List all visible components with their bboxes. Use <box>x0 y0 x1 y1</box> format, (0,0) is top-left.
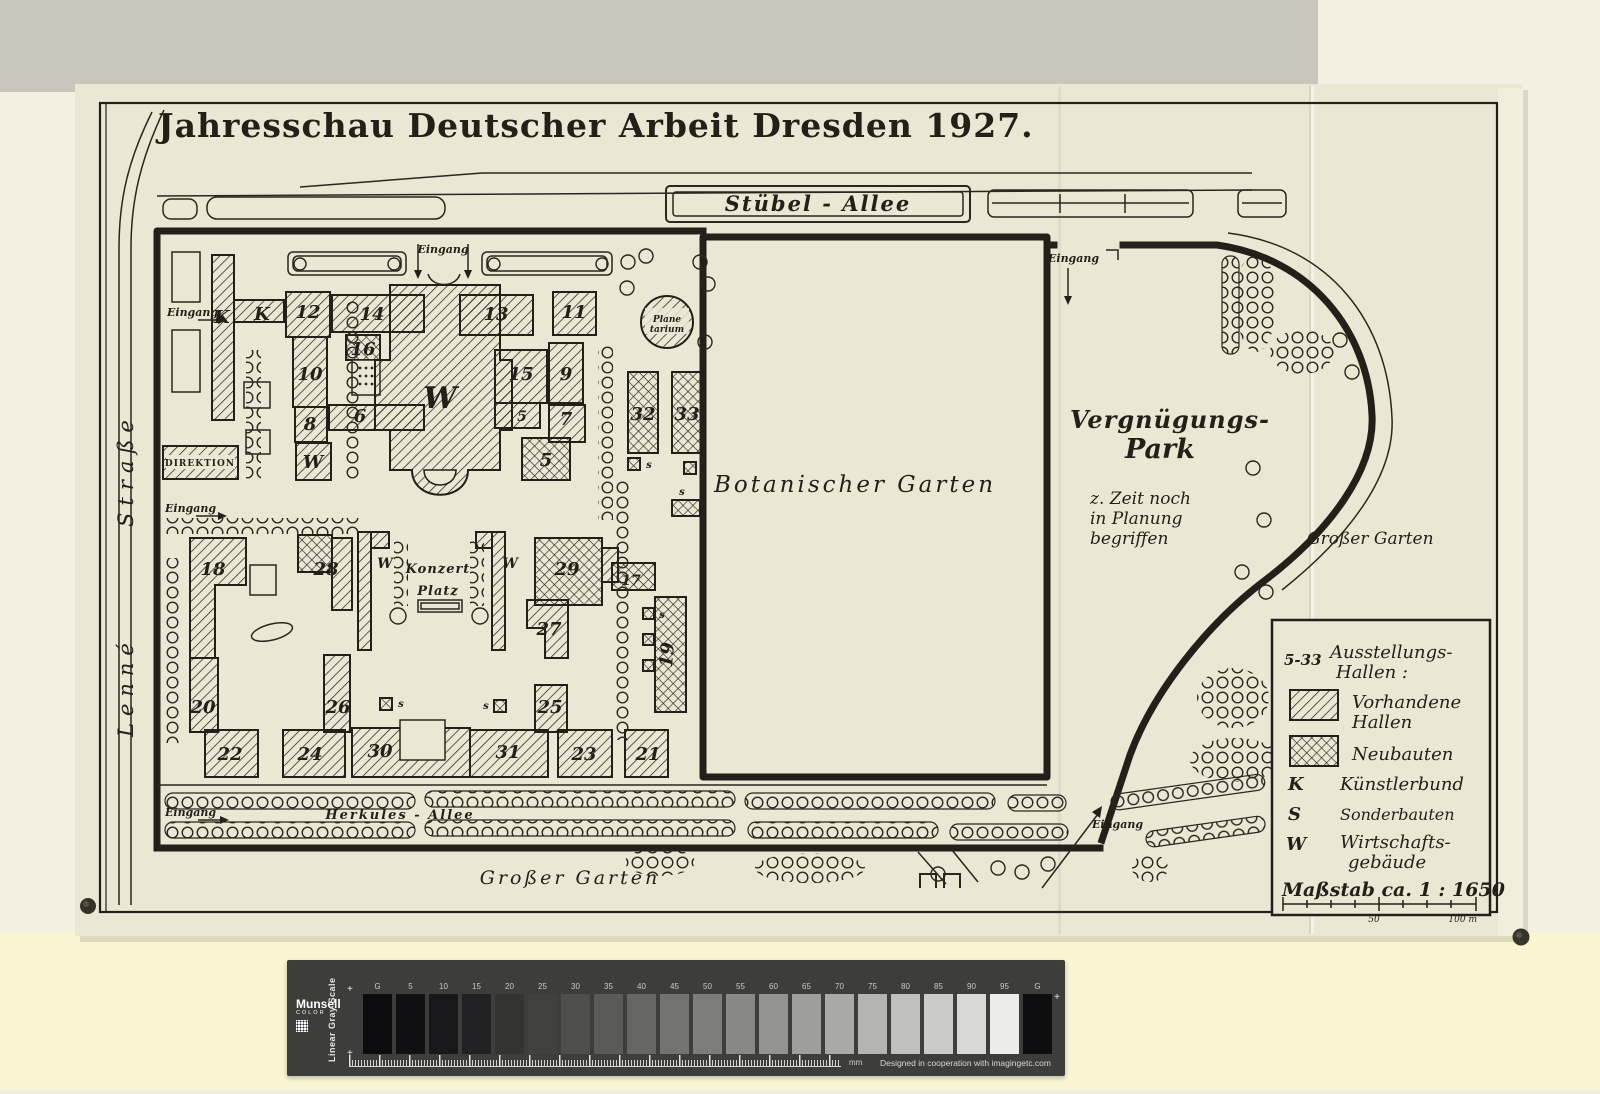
stuebel-allee-label: Stübel - Allee <box>725 191 911 216</box>
label-23: 23 <box>570 744 596 765</box>
credit-text: Designed in cooperation with imagingetc.… <box>880 1058 1051 1068</box>
gray-patch: 45 <box>660 982 689 1054</box>
scale-mid-label: 50 <box>1368 915 1380 925</box>
entrance-left-upper-label: Eingang <box>166 306 218 319</box>
push-pin-right-highlight <box>1516 932 1522 938</box>
gray-patch: 60 <box>759 982 788 1054</box>
hall-28-corridor <box>358 532 371 650</box>
label-18: 18 <box>200 559 226 580</box>
label-s: s <box>483 701 489 712</box>
booth-1 <box>172 252 200 302</box>
gray-patch: 10 <box>429 982 458 1054</box>
vergnuegungspark-label-2: Park <box>1124 434 1195 465</box>
legend-existing-2: Hallen <box>1351 712 1412 733</box>
label-9: 9 <box>560 364 573 385</box>
gray-patch: 5 <box>396 982 425 1054</box>
label-32: 32 <box>630 404 655 425</box>
legend-k-label: Künstlerbund <box>1339 774 1464 795</box>
label-31: 31 <box>495 742 520 763</box>
label-19: 19 <box>656 641 679 668</box>
label-21: 21 <box>634 744 660 765</box>
hall-30-portico <box>400 720 445 760</box>
legend-s-label: Sonderbauten <box>1340 805 1455 824</box>
gray-patch: 25 <box>528 982 557 1054</box>
gray-patch: 80 <box>891 982 920 1054</box>
label-w-corridor-left: W <box>377 556 394 572</box>
legend-existing-1: Vorhandene <box>1352 692 1461 713</box>
label-8: 8 <box>303 414 317 435</box>
legend-s-key: S <box>1288 804 1301 825</box>
label-26: 26 <box>324 697 351 718</box>
legend-head-1: Ausstellungs- <box>1328 642 1453 663</box>
label-11: 11 <box>561 302 586 323</box>
gray-backdrop <box>0 0 1318 88</box>
label-k2: K <box>253 304 271 325</box>
court-square <box>250 565 276 595</box>
planetarium-label-1: Plane <box>652 315 682 325</box>
legend-swatch-existing <box>1290 690 1338 720</box>
direktion-label: DIREKTION <box>165 459 235 469</box>
legend-swatch-new <box>1290 736 1338 766</box>
park-note-3: begriffen <box>1090 529 1168 549</box>
legend-w-key: W <box>1286 834 1308 855</box>
grosser-garten-right-label: Großer Garten <box>1307 529 1434 549</box>
entrance-top-label: Eingang <box>416 243 468 256</box>
legend-range: 5-33 <box>1284 651 1322 669</box>
map-title: Jahresschau Deutscher Arbeit Dresden 192… <box>155 106 1034 145</box>
s-pavilion <box>628 458 640 470</box>
legend-k-key: K <box>1287 774 1305 795</box>
gray-patches: G5101520253035404550556065707580859095G <box>363 982 1056 1054</box>
park-note-2: in Planung <box>1090 509 1183 529</box>
gray-patch: 90 <box>957 982 986 1054</box>
scale-end-label: 100 m <box>1448 915 1477 925</box>
gray-patch: 50 <box>693 982 722 1054</box>
label-14: 14 <box>359 304 384 325</box>
lenne-strasse-name-label: Lenné <box>114 636 138 738</box>
munsell-logo-icon <box>296 1020 308 1032</box>
legend-w-label-2: gebäude <box>1348 852 1426 873</box>
entrance-bottom-right-label: Eingang <box>1091 818 1143 831</box>
s-pavilion <box>684 462 696 474</box>
scale-text: Maßstab ca. 1 : 1650 <box>1281 879 1505 901</box>
hall-20 <box>190 658 218 732</box>
gray-patch: 30 <box>561 982 590 1054</box>
vergnuegungspark-label-1: Vergnügungs- <box>1070 405 1270 434</box>
label-w-corridor-right: W <box>502 556 519 572</box>
konzertplatz-label-1: Konzert <box>405 562 471 577</box>
label-22: 22 <box>216 744 242 765</box>
hall-k-strip <box>212 255 234 420</box>
label-w-main: W <box>423 381 460 416</box>
label-12: 12 <box>295 302 320 323</box>
entrance-park-top-label: Eingang <box>1047 252 1099 265</box>
label-30: 30 <box>367 741 393 762</box>
label-15: 15 <box>508 364 533 385</box>
label-13: 13 <box>483 304 508 325</box>
s-pavilion <box>494 700 506 712</box>
label-24: 24 <box>296 744 322 765</box>
label-5-small: 5 <box>517 409 527 425</box>
gray-patch: 55 <box>726 982 755 1054</box>
gray-patch: G <box>1023 982 1052 1054</box>
legend-head-2: Hallen : <box>1335 662 1408 683</box>
legend-new: Neubauten <box>1351 744 1453 765</box>
botanischer-garten-label: Botanischer Garten <box>713 472 996 498</box>
gray-patch: 95 <box>990 982 1019 1054</box>
s-pavilion <box>672 500 700 516</box>
label-s: s <box>679 487 685 498</box>
legend: 5-33 Ausstellungs- Hallen : Vorhandene H… <box>1272 620 1505 925</box>
map-scan-svg: Jahresschau Deutscher Arbeit Dresden 192… <box>0 0 1600 1090</box>
s-pavilion <box>380 698 392 710</box>
scanned-map-photo: Jahresschau Deutscher Arbeit Dresden 192… <box>0 0 1600 1090</box>
label-10: 10 <box>297 364 323 385</box>
label-k1: K <box>213 307 231 328</box>
label-w-small: W <box>303 452 325 473</box>
gray-patch: 70 <box>825 982 854 1054</box>
label-5-new: 5 <box>540 450 553 471</box>
hall-26 <box>324 655 350 732</box>
ruler-unit-label: mm <box>849 1058 862 1067</box>
label-s: s <box>659 610 665 621</box>
label-29: 29 <box>553 559 580 580</box>
label-28: 28 <box>312 559 339 580</box>
gray-patch: 35 <box>594 982 623 1054</box>
entrance-left-mid-label: Eingang <box>164 502 216 515</box>
gray-patch: 20 <box>495 982 524 1054</box>
s-pavilion <box>643 634 654 645</box>
gray-patch: 40 <box>627 982 656 1054</box>
sheet-edge-curl <box>1498 88 1523 936</box>
gray-scale-name: Linear Gray Scale <box>327 974 337 1062</box>
gray-patch: 75 <box>858 982 887 1054</box>
gray-patch: 85 <box>924 982 953 1054</box>
munsell-gray-scale-bar: Munsell COLOR Linear Gray Scale + + + G5… <box>287 960 1065 1076</box>
legend-w-label-1: Wirtschafts- <box>1340 832 1451 853</box>
label-s: s <box>646 460 652 471</box>
label-s: s <box>398 699 404 710</box>
label-25: 25 <box>536 697 562 718</box>
s-pavilion <box>643 660 654 671</box>
registration-plus: + <box>347 984 353 995</box>
mm-ruler <box>349 1054 841 1067</box>
push-pin-left-highlight <box>83 901 89 907</box>
konzertplatz-label-2: Platz <box>416 584 459 599</box>
gray-patch: 15 <box>462 982 491 1054</box>
gray-patch: 65 <box>792 982 821 1054</box>
hall-29-corridor <box>492 532 505 650</box>
label-27: 27 <box>535 619 562 640</box>
gray-patch: G <box>363 982 392 1054</box>
planetarium-label-2: tarium <box>650 325 684 335</box>
label-7: 7 <box>560 409 573 430</box>
hall-28-head <box>371 532 389 548</box>
booth-2 <box>172 330 200 392</box>
gray-backdrop-left <box>0 0 78 92</box>
label-33: 33 <box>674 404 699 425</box>
park-note-1: z. Zeit noch <box>1089 489 1191 509</box>
label-20: 20 <box>189 697 216 718</box>
lenne-strasse-type-label: Straße <box>114 413 138 527</box>
s-pavilion <box>643 608 654 619</box>
